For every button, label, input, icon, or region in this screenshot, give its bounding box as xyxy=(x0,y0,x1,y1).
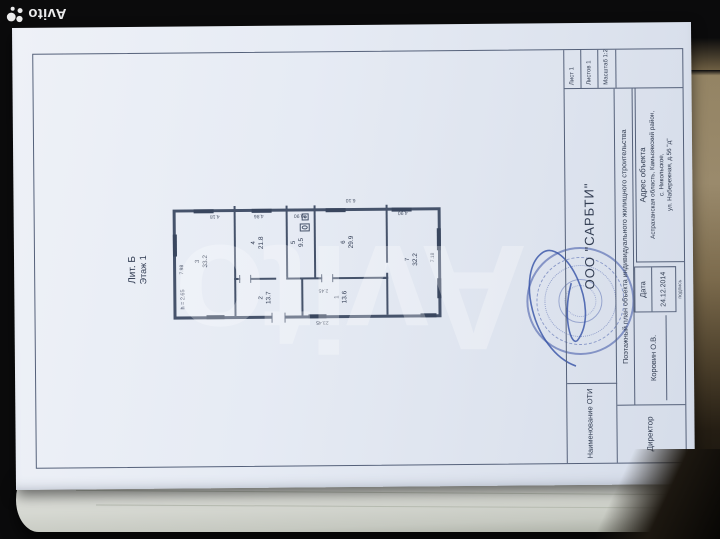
avito-corner-logo: Avito xyxy=(5,3,66,25)
address-cell: Адрес объекта Астраханская область, Камы… xyxy=(635,88,685,262)
photo-of-floorplan-document: { "brand": { "corner_text": "Avito", "ce… xyxy=(0,0,720,539)
room-label: 732.2 xyxy=(405,245,419,273)
window-block xyxy=(437,228,441,250)
window-block xyxy=(309,314,327,318)
door-tick xyxy=(332,274,333,282)
dimension-text: 7.18 xyxy=(430,253,436,263)
sheets-total: Листов 1 xyxy=(581,50,598,88)
interior-wall xyxy=(301,278,303,315)
door-opening xyxy=(385,263,389,273)
interior-wall xyxy=(234,206,237,316)
title-block: Наименование ОТИ ООО "САРБТИ" Директор П… xyxy=(563,49,686,463)
address-line: Астраханская область, Камызякский район, xyxy=(649,88,659,261)
dimension-text: 7.98 xyxy=(179,265,185,275)
dimension-text: 0.90 xyxy=(294,212,304,218)
liter-text: Лит. Б xyxy=(127,235,139,305)
window-block xyxy=(421,313,437,317)
sheet-number: Лист 1 xyxy=(564,50,581,88)
document-sheet: Лит. Б Этаж 1 h = 2.65 333.2421.859.5629… xyxy=(12,22,695,490)
dimension-text: 6.10 xyxy=(346,197,356,203)
door-tick xyxy=(321,274,322,282)
window-block xyxy=(326,208,346,212)
floor-plan-drawing: h = 2.65 333.2421.859.5629.9732.2213.711… xyxy=(173,207,442,319)
interior-wall xyxy=(386,205,389,315)
dimension-text: 4.86 xyxy=(254,213,264,219)
building-liter-label: Лит. Б Этаж 1 xyxy=(127,235,149,305)
organization-name: ООО "САРБТИ" xyxy=(565,89,618,383)
door-opening xyxy=(273,315,285,320)
drawing-frame: Лит. Б Этаж 1 h = 2.65 333.2421.859.5629… xyxy=(32,48,687,469)
dimension-text: 4.90 xyxy=(398,210,408,216)
date-value: 24.12.2014 xyxy=(652,267,676,311)
dimension-text: 23.45 xyxy=(316,319,329,325)
door-opening xyxy=(322,276,332,280)
door-tick xyxy=(239,275,240,283)
interior-wall xyxy=(234,277,388,280)
door-opening xyxy=(240,277,250,281)
sheet-info-column: Лист 1 Листов 1 Масштаб 1:200 xyxy=(564,49,682,89)
scale-label: Масштаб 1:200 xyxy=(598,50,616,88)
window-block xyxy=(173,235,177,257)
door-tick xyxy=(284,313,285,323)
room-label: 629.9 xyxy=(341,228,355,256)
room-label: 333.2 xyxy=(195,247,209,275)
room-label: 113.6 xyxy=(334,283,348,311)
background-shadow xyxy=(580,449,720,539)
window-block xyxy=(207,315,225,319)
signature-label: подпись xyxy=(677,266,683,312)
room-label: 421.8 xyxy=(251,229,265,257)
room-label: 59.5 xyxy=(291,228,305,256)
avito-dots-icon xyxy=(5,4,25,24)
document-title: Поэтажный план объекта индивидуального ж… xyxy=(615,89,636,405)
door-opening xyxy=(276,277,286,281)
floor-text: Этаж 1 xyxy=(138,235,149,305)
door-tick xyxy=(271,313,272,323)
window-block xyxy=(437,278,441,298)
dimension-text: 2.45 xyxy=(319,287,329,293)
floorplan-document: Лит. Б Этаж 1 h = 2.65 333.2421.859.5629… xyxy=(14,23,694,489)
interior-wall xyxy=(314,205,317,278)
room-label: 213.7 xyxy=(258,284,272,312)
dimension-text: 4.18 xyxy=(210,213,220,219)
avito-wordmark: Avito xyxy=(28,6,66,23)
date-cell: Дата 24.12.2014 xyxy=(634,266,676,312)
ceiling-height-note: h = 2.65 xyxy=(180,289,186,309)
address-line: ул. Набережная, д.56 "д" xyxy=(666,88,676,261)
director-name: Коровин О.В. xyxy=(649,315,668,400)
interior-wall xyxy=(286,206,289,279)
date-label: Дата xyxy=(635,267,652,311)
door-tick xyxy=(250,275,251,283)
